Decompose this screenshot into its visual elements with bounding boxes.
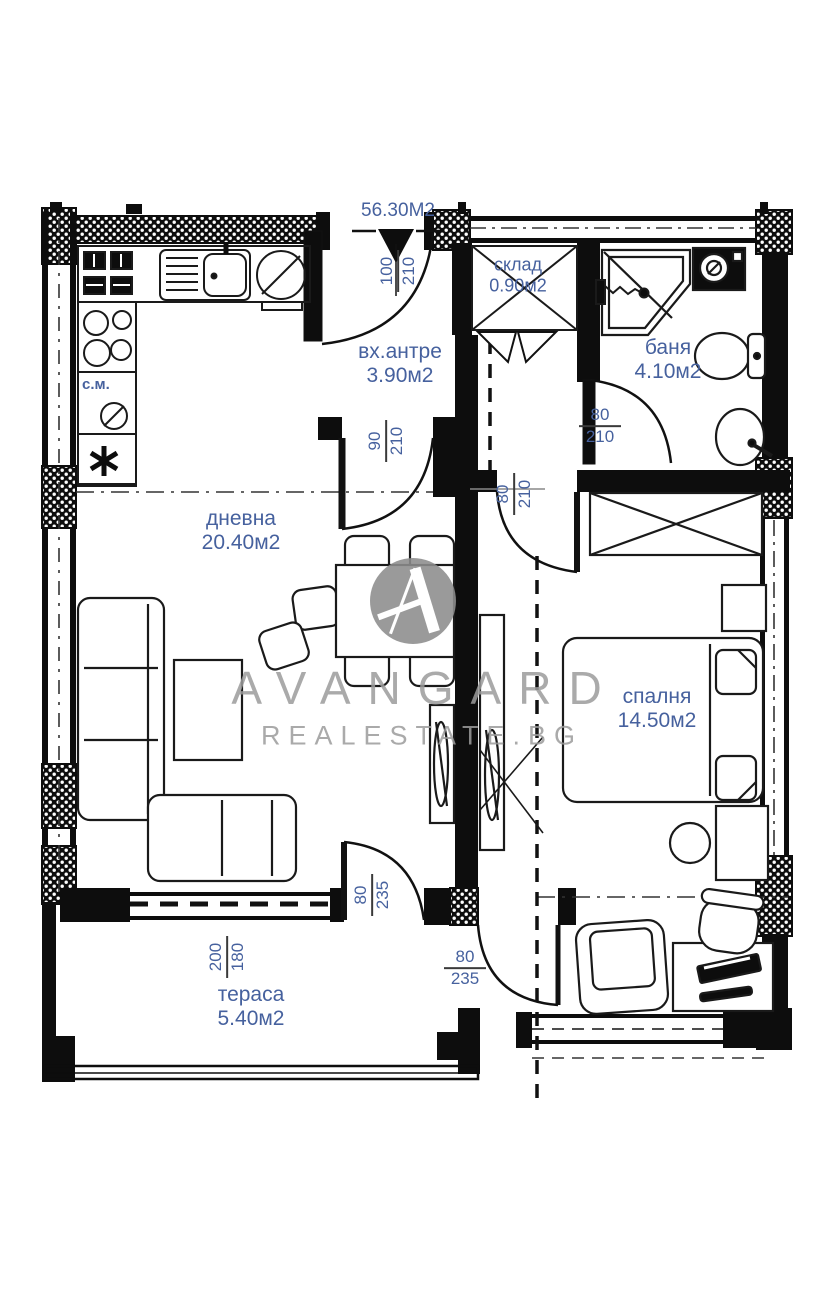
watermark-site: REALESTATE.BG	[261, 721, 583, 752]
room-label-bath: баня 4.10м2	[635, 336, 702, 384]
brand-logo	[370, 558, 456, 644]
armchair	[575, 919, 669, 1015]
dim-label-bath-door: 80 210	[579, 406, 621, 446]
passage-door-arc	[478, 925, 558, 1005]
dim-label-living-door: 90 210	[366, 420, 406, 462]
room-label-storage: склад 0.90м2	[489, 254, 546, 295]
room-label-terrace: тераса 5.40м2	[218, 983, 285, 1031]
room-label-entry: вх.антре 3.90м2	[358, 340, 442, 388]
shower	[596, 250, 690, 335]
terrace-railing	[45, 1066, 478, 1079]
dim-label-passage-door: 80 235	[444, 948, 486, 988]
dim-label-bedroom-door: 80 210	[494, 473, 534, 515]
dim-label-entry-door: 100 210	[378, 250, 418, 292]
wardrobe	[590, 493, 762, 555]
pillow	[716, 650, 756, 694]
watermark-brand: AVANGARD	[231, 661, 618, 715]
cooktop-icon	[84, 311, 131, 366]
desk-chair	[695, 888, 765, 956]
kitchen	[78, 244, 310, 486]
stool	[670, 823, 710, 863]
desk-area	[673, 888, 773, 1011]
fridge-icon	[257, 251, 305, 310]
dishwasher-icon	[78, 434, 136, 486]
room-label-bedroom: спалня 14.50м2	[618, 685, 697, 733]
dresser	[716, 806, 768, 880]
boiler-icon	[693, 248, 745, 290]
stove-icon	[84, 252, 132, 294]
total-area-label: 56.30М2	[361, 200, 435, 222]
kitchen-sink-icon	[160, 244, 250, 300]
dim-label-terrace-door: 80 235	[352, 874, 392, 916]
dim-label-terrace-window: 200 180	[207, 936, 247, 978]
room-label-living: дневна 20.40м2	[202, 507, 281, 555]
nightstand	[722, 585, 766, 631]
floor-plan-drawing	[0, 0, 828, 1306]
floor-plan: AVANGARD REALESTATE.BG 56.30М2 вх.антре …	[0, 0, 828, 1306]
toilet-icon	[695, 333, 765, 379]
washing-machine-label: с.м.	[82, 376, 110, 393]
bedroom-furniture	[480, 493, 773, 1015]
pillow	[716, 756, 756, 800]
